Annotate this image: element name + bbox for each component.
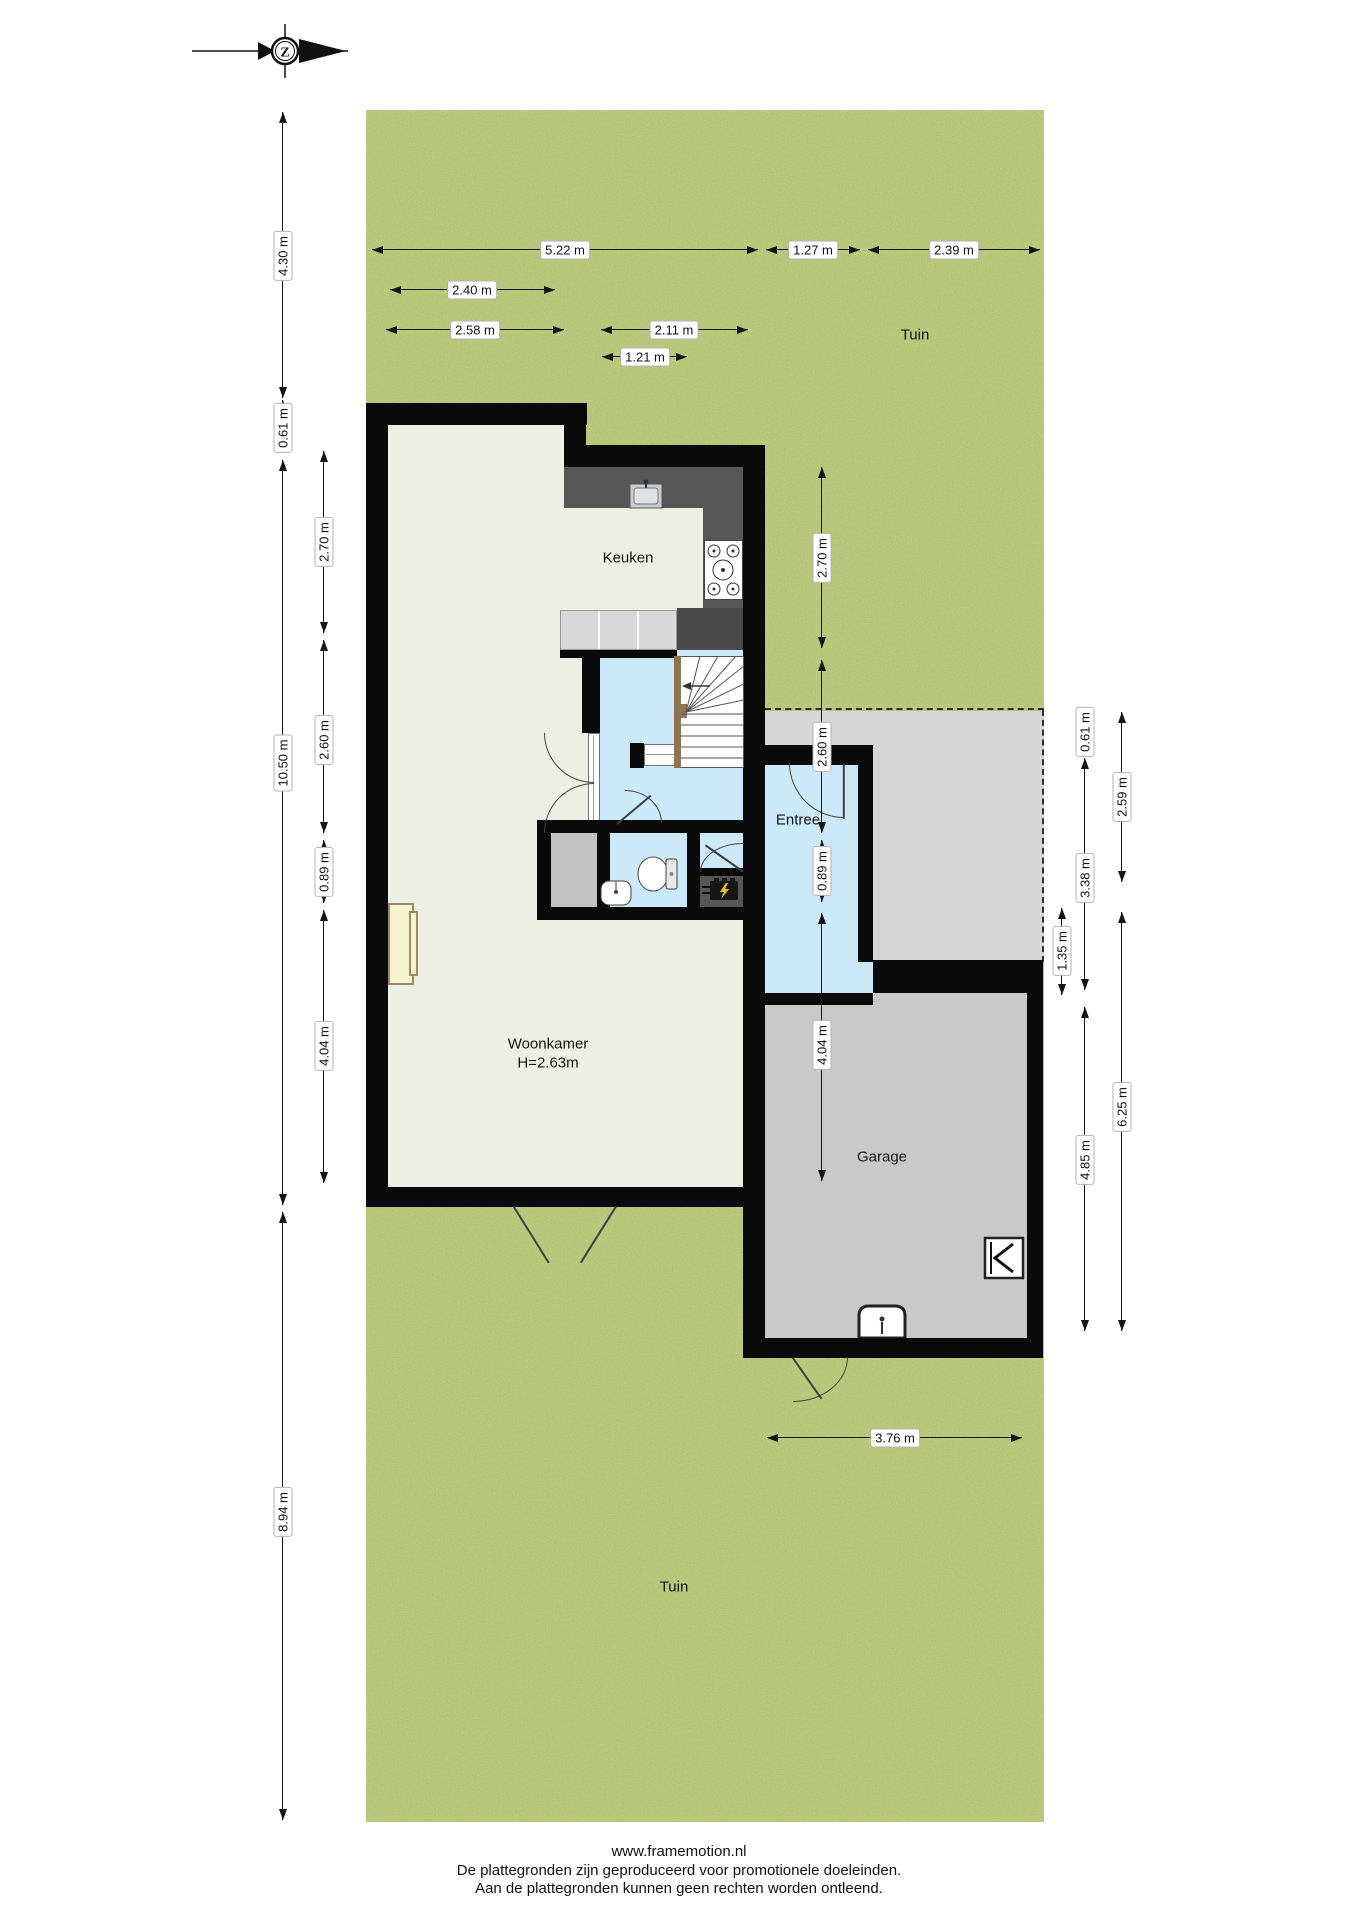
wall-left — [366, 403, 388, 1207]
dimension-label: 4.04 m — [813, 1020, 832, 1070]
wall-right-lower — [743, 872, 765, 1358]
dimension-label: 1.27 m — [788, 241, 838, 260]
cabinet-divider — [598, 611, 600, 649]
living-height-label: H=2.63m — [517, 1055, 578, 1072]
wall-under-cabinets — [560, 650, 677, 658]
dimension-label: 4.30 m — [274, 231, 293, 281]
electric-meter-icon — [702, 878, 742, 904]
dimension-label: 2.40 m — [447, 281, 497, 300]
driveway-area — [873, 745, 1044, 962]
kitchen-sink-icon — [629, 479, 663, 509]
footer-disclaimer-1: De plattegronden zijn geproduceerd voor … — [0, 1862, 1358, 1879]
wall-hall-stub — [582, 650, 600, 733]
dimension-label: 5.22 m — [540, 241, 590, 260]
wall-stair-stub — [630, 743, 644, 768]
dimension-label: 1.35 m — [1053, 926, 1072, 976]
dimension-label: 4.04 m — [315, 1021, 334, 1071]
wall-garage-bottom — [743, 1338, 1043, 1358]
boiler-icon — [983, 1236, 1025, 1280]
closet-floor — [551, 833, 597, 907]
wall-entry-right — [858, 745, 873, 962]
compass-letter: Z — [280, 46, 289, 61]
wall-living-bottom — [366, 1187, 755, 1207]
cabinet-divider — [637, 611, 639, 649]
toilet-icon — [636, 854, 682, 894]
dimension-label: 10.50 m — [274, 735, 293, 792]
front-door-leaf — [843, 764, 845, 819]
dimension-label: 0.61 m — [274, 403, 293, 453]
kitchen-label: Keuken — [603, 550, 654, 567]
stairs-icon — [674, 656, 744, 768]
wall-step — [564, 403, 586, 467]
compass-icon: Z — [180, 10, 360, 94]
garage-sink-icon — [855, 1304, 909, 1338]
wall-top-living — [366, 403, 587, 425]
living-room-floor — [388, 425, 564, 1187]
entry-label: Entree — [776, 812, 820, 829]
dimension-label: 2.70 m — [315, 517, 334, 567]
dimension-label: 1.21 m — [620, 348, 670, 367]
floorplan-page: { "compass": { "letter": "Z" }, "garden"… — [0, 0, 1358, 1920]
radiator-fin — [409, 911, 418, 976]
living-label: Woonkamer — [508, 1036, 589, 1053]
dimension-label: 4.85 m — [1076, 1135, 1095, 1185]
dimension-label: 6.25 m — [1113, 1082, 1132, 1132]
wall-right-upper — [743, 445, 765, 832]
window-stair-landing — [644, 744, 678, 766]
kitchen-cabinets — [560, 610, 677, 650]
dimension-label: 2.60 m — [813, 722, 832, 772]
dimension-label: 2.60 m — [315, 715, 334, 765]
wall-kitchen-front — [584, 445, 765, 467]
garden-label-bottom: Tuin — [660, 1579, 689, 1596]
dimension-label: 3.76 m — [870, 1429, 920, 1448]
dimension-label: 2.70 m — [813, 533, 832, 583]
dimension-label: 2.59 m — [1113, 772, 1132, 822]
wall-garage-front — [873, 960, 1043, 993]
footer-site: www.framemotion.nl — [0, 1843, 1358, 1860]
garage-floor — [765, 993, 1027, 1338]
driveway-area — [765, 711, 1044, 745]
dimension-label: 2.58 m — [450, 321, 500, 340]
dimension-label: 0.89 m — [315, 847, 334, 897]
stove-icon — [704, 540, 743, 600]
garage-label: Garage — [857, 1149, 907, 1166]
dimension-label: 3.38 m — [1076, 853, 1095, 903]
footer-disclaimer-2: Aan de plattegronden kunnen geen rechten… — [0, 1880, 1358, 1897]
kitchen-appliance-block — [677, 608, 743, 650]
dimension-label: 0.61 m — [1076, 707, 1095, 757]
plot-boundary-dashed — [1042, 710, 1044, 962]
dimension-label: 0.89 m — [813, 846, 832, 896]
garden-label-top: Tuin — [901, 327, 930, 344]
dimension-label: 2.11 m — [650, 321, 699, 340]
wall-garage-right — [1027, 960, 1043, 1358]
basin-icon — [600, 878, 632, 906]
dimension-label: 8.94 m — [274, 1487, 293, 1537]
plot-boundary-dashed — [765, 708, 1044, 710]
dimension-label: 2.39 m — [929, 241, 979, 260]
wall-garage-topleft — [743, 993, 873, 1005]
